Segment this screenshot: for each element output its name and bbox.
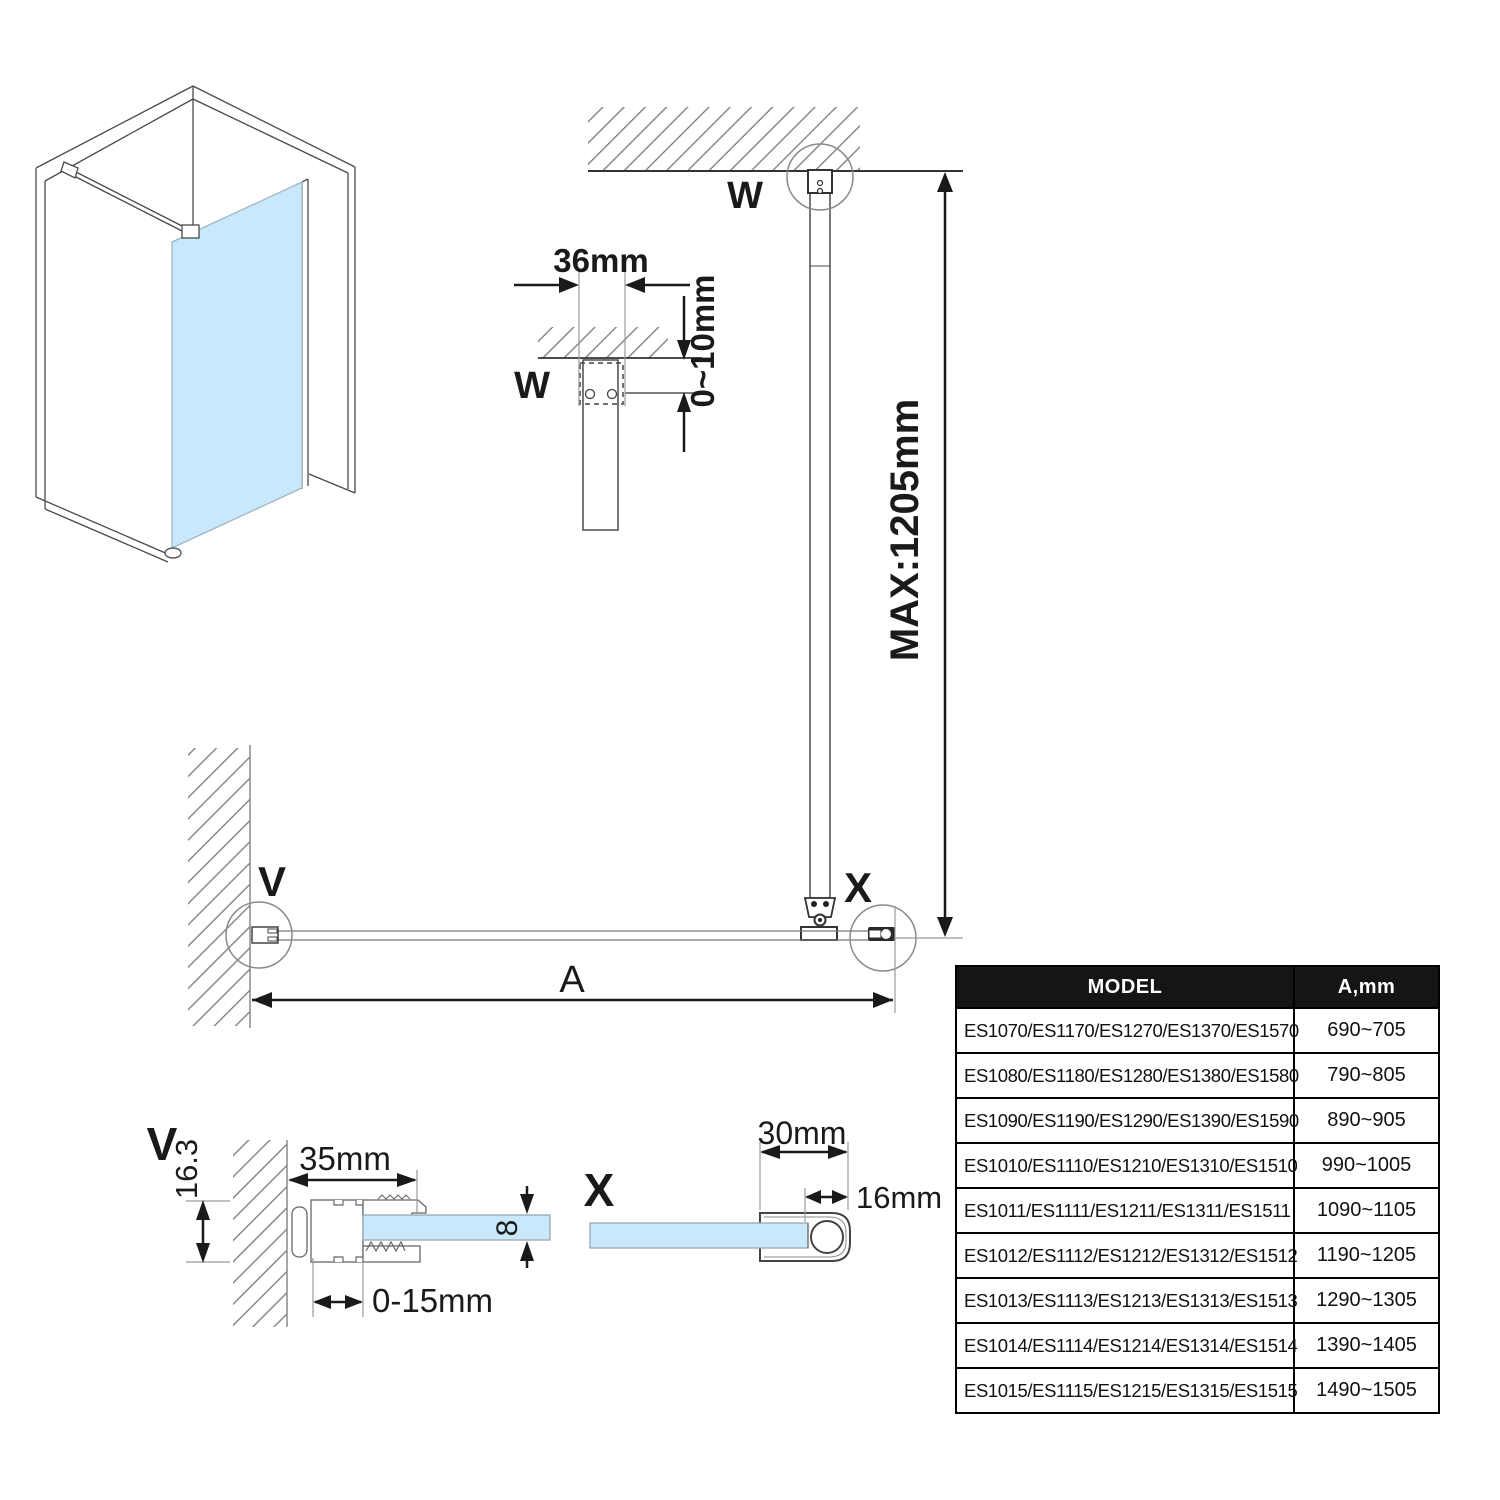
- table-row: ES1011/ES1111/ES1211/ES1311/ES1511 1090~…: [956, 1188, 1439, 1233]
- table-row: ES1070/ES1170/ES1270/ES1370/ES1570 690~7…: [956, 1008, 1439, 1053]
- model-cell: ES1011/ES1111/ES1211/ES1311/ES1511: [956, 1188, 1294, 1233]
- plan-wall-hatch: [188, 748, 250, 1026]
- label-x-plan: X: [844, 864, 872, 911]
- plan-view: V X: [188, 745, 916, 1028]
- table-row: ES1012/ES1112/ES1212/ES1312/ES1512 1190~…: [956, 1233, 1439, 1278]
- table-row: ES1090/ES1190/ES1290/ES1390/ES1590 890~9…: [956, 1098, 1439, 1143]
- label-dim-a: A: [559, 959, 585, 1001]
- technical-drawing-page: W V X A: [0, 0, 1500, 1500]
- dim-ceiling-gap: 0~10mm: [684, 274, 721, 407]
- a-cell: 790~805: [1294, 1053, 1439, 1098]
- detail-w-hatch: [538, 327, 668, 358]
- model-cell: ES1013/ES1113/ES1213/ES1313/ES1513: [956, 1278, 1294, 1323]
- detail-v-section: V 16.3 35mm: [147, 1118, 550, 1327]
- iso-left-wall: [36, 86, 193, 562]
- dim-bracket-width: 36mm: [553, 242, 648, 279]
- a-cell: 690~705: [1294, 1008, 1439, 1053]
- label-w-small: W: [514, 365, 550, 407]
- a-cell: 1490~1505: [1294, 1368, 1439, 1413]
- header-model: MODEL: [956, 966, 1294, 1008]
- plan-glass: [253, 931, 868, 940]
- ceiling-bracket: [808, 170, 832, 194]
- model-cell: ES1080/ES1180/ES1280/ES1380/ES1580: [956, 1053, 1294, 1098]
- table-row: ES1010/ES1110/ES1210/ES1310/ES1510 990~1…: [956, 1143, 1439, 1188]
- a-cell: 990~1005: [1294, 1143, 1439, 1188]
- dim-bar-depth: 30mm: [758, 1115, 847, 1151]
- isometric-view: [36, 86, 355, 562]
- detail-v-wall-hatch: [233, 1140, 287, 1327]
- table-row: ES1080/ES1180/ES1280/ES1380/ES1580 790~8…: [956, 1053, 1439, 1098]
- dim-max-bar-length: MAX:1205mm: [883, 399, 927, 661]
- dim-wall-profile-width: 35mm: [299, 1140, 391, 1177]
- label-x-section: X: [584, 1164, 615, 1216]
- a-cell: 1190~1205: [1294, 1233, 1439, 1278]
- model-cell: ES1070/ES1170/ES1270/ES1370/ES1570: [956, 1008, 1294, 1053]
- model-cell: ES1014/ES1114/ES1214/ES1314/ES1514: [956, 1323, 1294, 1368]
- label-w-main: W: [727, 175, 763, 217]
- plan-wall-profile: [252, 927, 278, 943]
- model-size-table: MODEL A,mm ES1070/ES1170/ES1270/ES1370/E…: [955, 965, 1440, 1414]
- header-a-mm: A,mm: [1294, 966, 1439, 1008]
- a-cell: 1090~1105: [1294, 1188, 1439, 1233]
- dim-adjustment-range: 0-15mm: [372, 1282, 493, 1319]
- model-cell: ES1012/ES1112/ES1212/ES1312/ES1512: [956, 1233, 1294, 1278]
- detail-x-section: X 30mm 16mm: [584, 1115, 942, 1261]
- dim-bar-width: 16mm: [856, 1180, 942, 1215]
- a-cell: 890~905: [1294, 1098, 1439, 1143]
- detail-w-section: 36mm 0~10mm W: [514, 242, 721, 530]
- table-row: ES1015/ES1115/ES1215/ES1315/ES1515 1490~…: [956, 1368, 1439, 1413]
- ceiling-hatch: [588, 107, 860, 171]
- bar-tube-section: [811, 1221, 843, 1253]
- model-cell: ES1015/ES1115/ES1215/ES1315/ES1515: [956, 1368, 1294, 1413]
- model-cell: ES1090/ES1190/ES1290/ES1390/ES1590: [956, 1098, 1294, 1143]
- iso-floor-foot: [165, 548, 181, 558]
- detail-w-bar: [583, 360, 618, 530]
- a-cell: 1290~1305: [1294, 1278, 1439, 1323]
- dim-wall-profile-height: 16.3: [169, 1139, 204, 1199]
- a-cell: 1390~1405: [1294, 1323, 1439, 1368]
- support-bar: [810, 193, 830, 898]
- detail-x-glass: [590, 1223, 808, 1248]
- table-row: ES1014/ES1114/ES1214/ES1314/ES1514 1390~…: [956, 1323, 1439, 1368]
- dim-glass-thickness: 8: [491, 1220, 524, 1237]
- table-row: ES1013/ES1113/ES1213/ES1313/ES1513 1290~…: [956, 1278, 1439, 1323]
- table-header-row: MODEL A,mm: [956, 966, 1439, 1008]
- iso-support-bar: [61, 162, 199, 238]
- model-cell: ES1010/ES1110/ES1210/ES1310/ES1510: [956, 1143, 1294, 1188]
- plan-end-cap: [868, 927, 895, 941]
- label-v-plan: V: [258, 858, 286, 905]
- iso-wall-profile: [302, 179, 308, 489]
- bar-hinge: [801, 898, 837, 940]
